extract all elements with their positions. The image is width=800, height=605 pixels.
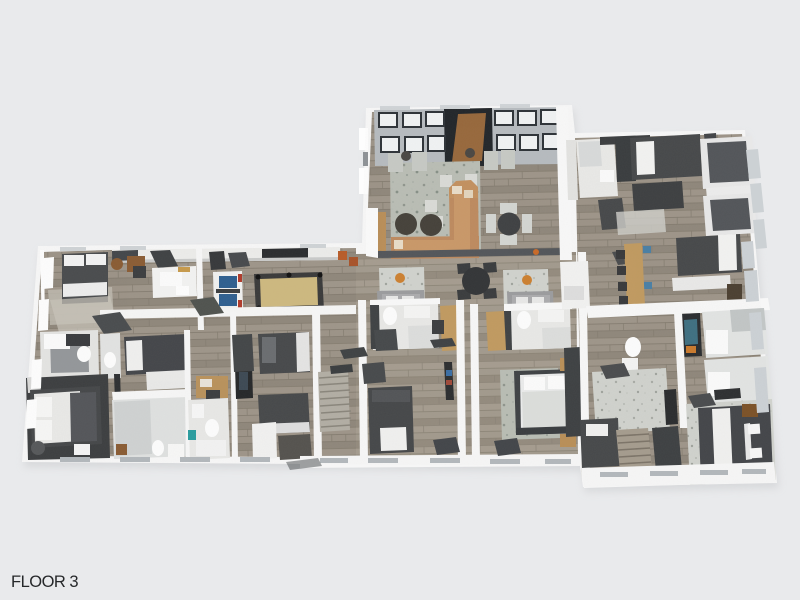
svg-text:FLOOR 3: FLOOR 3 (11, 573, 78, 591)
